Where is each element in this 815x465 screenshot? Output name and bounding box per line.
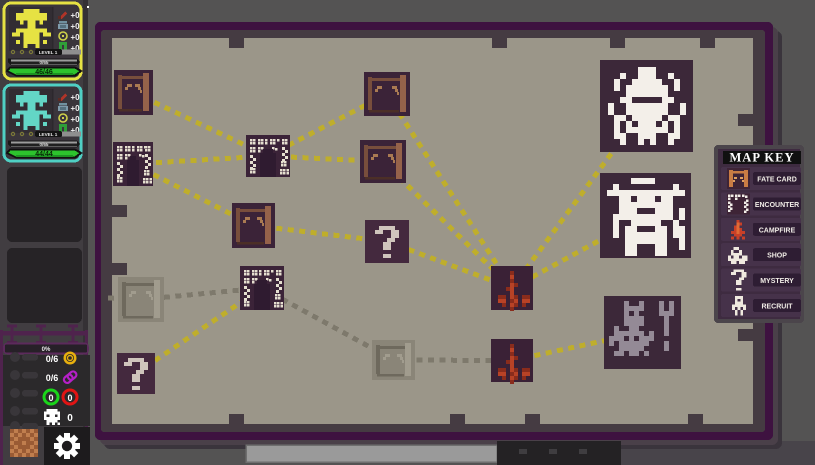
svg-text:0/6: 0/6 <box>46 373 59 383</box>
svg-text:+0: +0 <box>70 11 80 20</box>
svg-text:0: 0 <box>48 393 53 403</box>
svg-text:0%: 0% <box>42 347 51 353</box>
svg-text:0/65: 0/65 <box>40 60 49 65</box>
svg-text:0: 0 <box>67 393 72 403</box>
svg-text:MYSTERY: MYSTERY <box>760 278 794 285</box>
svg-text:+0: +0 <box>70 104 80 113</box>
svg-text:CAMPFIRE: CAMPFIRE <box>759 227 796 234</box>
svg-text:ENCOUNTER: ENCOUNTER <box>755 202 799 209</box>
svg-text:MAP KEY: MAP KEY <box>730 151 795 165</box>
svg-text:44/44: 44/44 <box>35 151 53 158</box>
svg-text:+0: +0 <box>70 115 80 124</box>
svg-text:+0: +0 <box>70 22 80 31</box>
svg-text:FATE CARD: FATE CARD <box>757 177 797 184</box>
svg-text:46/46: 46/46 <box>35 69 53 76</box>
svg-text:0/65: 0/65 <box>40 142 49 147</box>
svg-text:LEVEL 1: LEVEL 1 <box>39 132 58 137</box>
svg-text:0: 0 <box>67 413 73 424</box>
svg-text:+0: +0 <box>70 93 80 102</box>
svg-text:SHOP: SHOP <box>767 253 787 260</box>
svg-text:RECRUIT: RECRUIT <box>761 304 793 311</box>
svg-text:LEVEL 1: LEVEL 1 <box>39 50 58 55</box>
svg-text:+0: +0 <box>70 33 80 42</box>
svg-text:0/6: 0/6 <box>46 354 59 364</box>
